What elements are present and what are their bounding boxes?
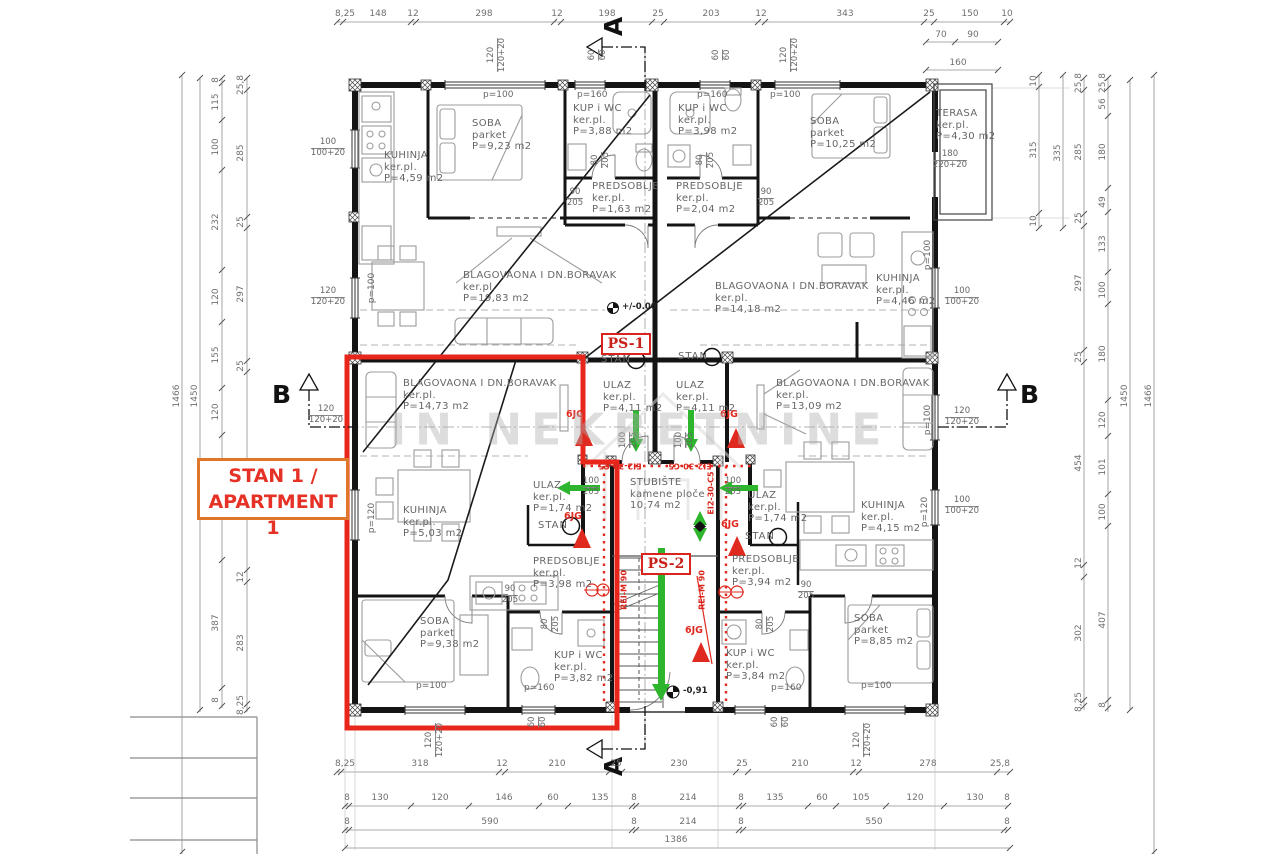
dim-label: 25 (1074, 351, 1084, 362)
dim-label: 180 (1098, 345, 1108, 362)
dim-label: 278 (919, 759, 936, 769)
level-zero-label: +/-0.00 (622, 302, 657, 312)
room-label-br-living: BLAGOVAONA I DN.BORAVAKker.pl.P=13,09 m2 (776, 378, 930, 413)
hydrant-6jg-2: 6JG (720, 409, 738, 420)
dim-label: 100 (1098, 503, 1108, 520)
dim-label: 8 (1004, 793, 1010, 803)
fire-rating-ei-h2: EI2-30-C5 (668, 462, 711, 471)
window-size-label: 6060 (771, 717, 791, 728)
dim-label: 25,8 (990, 759, 1010, 769)
fire-rating-rei-left: REI-M 90 (620, 570, 629, 610)
room-label-bl-living: BLAGOVAONA I DN.BORAVAKker.pl.P=14,73 m2 (403, 378, 557, 413)
dim-label: 8 (631, 817, 637, 827)
dim-label: 387 (211, 614, 221, 631)
apartment1-callout-line2: APARTMENT 1 (200, 489, 346, 541)
dim-label: 1450 (1120, 385, 1130, 408)
room-label-br-ulaz: ULAZker.pl.P=1,74 m2 (748, 490, 808, 525)
hydrant-6jg-1: 6JG (566, 409, 584, 420)
window-size-label: 120120+20 (309, 405, 343, 425)
dim-label: 70 (935, 30, 946, 40)
dim-label: 12 (850, 759, 861, 769)
dim-label: 8,25 (335, 9, 355, 19)
dim-label: 454 (1074, 454, 1084, 471)
dim-label: 203 (702, 9, 719, 19)
parapet-label: p=120 (920, 497, 930, 527)
dim-label: 318 (411, 759, 428, 769)
floor-plan-drawing (0, 0, 1280, 854)
door-size-label: 90205 (567, 188, 583, 208)
fire-rating-rei-right: REI-M 90 (698, 570, 707, 610)
section-a-top: A (599, 17, 628, 36)
window-size-label: 6060 (528, 717, 548, 728)
fire-rating-ei-vert: EI2-30-C5 (707, 471, 716, 514)
dim-label: 120 (1098, 411, 1108, 428)
door-size-label: 90205 (502, 585, 518, 605)
dim-label: 12 (236, 571, 246, 582)
window-size-label: 100100+20 (945, 287, 979, 307)
fire-rating-ei-h1: EI2-30-C5 (598, 462, 641, 471)
dim-label: 8 (738, 817, 744, 827)
dim-label: 8 (344, 817, 350, 827)
dim-label: 8 (738, 793, 744, 803)
parapet-label: p=100 (861, 681, 891, 691)
dim-label: 160 (949, 58, 966, 68)
parapet-label: p=160 (577, 90, 607, 100)
hydrant-6jg-4: 6JG (721, 519, 739, 530)
door-size-label: 80205 (541, 616, 561, 632)
room-label-bl-soba: SOBAparketP=9,38 m2 (420, 616, 480, 651)
dim-label: 25 (236, 360, 246, 371)
dim-label: 8,25 (236, 695, 246, 715)
dim-label: 1466 (172, 385, 182, 408)
window-size-label: 120120+20 (425, 723, 445, 757)
dim-label: 343 (836, 9, 853, 19)
parapet-label: p=100 (923, 240, 933, 270)
room-label-bl-hall: PREDSOBLJEker.pl.P=3,98 m2 (533, 556, 600, 591)
dim-label: 120 (211, 288, 221, 305)
dim-label: 1450 (190, 385, 200, 408)
parapet-label: p=100 (367, 273, 377, 303)
window-size-label: 120120+20 (311, 287, 345, 307)
dim-label: 214 (679, 817, 696, 827)
dim-label: 90 (967, 30, 978, 40)
dim-label: 133 (1098, 235, 1108, 252)
window-size-label: 120120+20 (780, 38, 800, 72)
dim-label: 148 (369, 9, 386, 19)
room-label-tl-hall: PREDSOBLJEker.pl.P=1,63 m2 (592, 181, 659, 216)
dim-label: 12 (496, 759, 507, 769)
door-size-label: 90205 (798, 581, 814, 601)
dim-label: 283 (236, 634, 246, 651)
room-label-tr-soba: SOBAparketP=10,25 m2 (810, 116, 876, 151)
apartment1-callout: STAN 1 / APARTMENT 1 (197, 458, 349, 520)
dim-label: 115 (211, 93, 221, 110)
dim-label: 25,8 (236, 75, 246, 95)
window-size-label: 100100+20 (311, 138, 345, 158)
dim-label: 230 (670, 759, 687, 769)
room-label-tl-soba: SOBAparketP=9,23 m2 (472, 118, 532, 153)
dim-label: 56 (1098, 98, 1108, 109)
dim-label: 210 (791, 759, 808, 769)
hydrant-6jg-3: 6JG (564, 511, 582, 522)
dim-label: 130 (371, 793, 388, 803)
dim-label: 25 (236, 216, 246, 227)
parapet-label: p=100 (923, 405, 933, 435)
dim-label: 12 (407, 9, 418, 19)
terrace-door-size-label: 180220+20 (933, 150, 967, 170)
dim-label: 550 (865, 817, 882, 827)
room-label-br-bath: KUP i WCker.pl.P=3,84 m2 (726, 648, 786, 683)
stan-text-br: STAN (745, 531, 775, 542)
window-size-label: 6060 (588, 50, 608, 61)
hydrant-6jg-5: 6JG (685, 625, 703, 636)
dim-label: 155 (211, 346, 221, 363)
room-label-ulaz-nl: ULAZker.pl.P=4,11 m2 (603, 380, 663, 415)
door-size-label: 90205 (758, 188, 774, 208)
dim-label: 25 (923, 9, 934, 19)
dim-label: 120 (211, 403, 221, 420)
door-size-label: 100205 (675, 432, 695, 448)
dim-label: 8 (1004, 817, 1010, 827)
dim-label: 1386 (665, 835, 688, 845)
dim-label: 8 (631, 793, 637, 803)
level-minus091-label: -0,91 (683, 686, 708, 696)
door-size-label: 100205 (619, 432, 639, 448)
dim-label: 60 (816, 793, 827, 803)
room-label-tl-living: BLAGOVAONA I DN.BORAVAKker.pl.P=19,83 m2 (463, 270, 617, 305)
dim-label: 25 (610, 759, 621, 769)
dim-label: 10 (1029, 75, 1039, 86)
dim-label: 590 (481, 817, 498, 827)
shaft-ps2-box: PS-2 (641, 553, 691, 575)
dim-label: 297 (236, 285, 246, 302)
dim-label: 8 (211, 697, 221, 703)
dim-label: 105 (852, 793, 869, 803)
dim-label: 101 (1098, 458, 1108, 475)
dim-label: 25,8 (1098, 73, 1108, 93)
apartment1-callout-line1: STAN 1 / (200, 463, 346, 489)
dim-label: 315 (1029, 141, 1039, 158)
dim-label: 100 (1098, 281, 1108, 298)
dim-label: 335 (1053, 144, 1063, 161)
dim-label: 297 (1074, 274, 1084, 291)
dim-label: 120 (431, 793, 448, 803)
dim-label: 25 (652, 9, 663, 19)
room-label-tl-bath: KUP i WCker.pl.P=3,88 m2 (573, 103, 633, 138)
adjacent-structure (130, 717, 257, 854)
dim-label: 12 (755, 9, 766, 19)
room-label-stairs: STUBIŠTEkamene ploče10,74 m2 (630, 477, 705, 512)
parapet-label: p=160 (697, 90, 727, 100)
parapet-label: p=100 (483, 90, 513, 100)
door-size-label: 100205 (725, 477, 741, 497)
dim-label: 25 (736, 759, 747, 769)
dim-label: 49 (1098, 196, 1108, 207)
dim-label: 210 (548, 759, 565, 769)
dim-label: 130 (966, 793, 983, 803)
shaft-ps1-box: PS-1 (601, 333, 651, 355)
door-size-label: 100205 (583, 477, 599, 497)
section-b-left: B (272, 380, 291, 409)
dim-label: 232 (211, 213, 221, 230)
room-label-br-soba: SOBAparketP=8,85 m2 (854, 613, 914, 648)
stan-text-nr: STAN (678, 351, 708, 362)
dim-label: 150 (961, 9, 978, 19)
parapet-label: p=160 (771, 683, 801, 693)
dim-label: 302 (1074, 624, 1084, 641)
dim-label: 8 (211, 77, 221, 83)
room-label-tr-kitchen: KUHINJAker.pl.P=4,46 m2 (876, 273, 936, 308)
dim-label: 285 (236, 144, 246, 161)
dim-label: 285 (1074, 143, 1084, 160)
room-label-tl-kitchen: KUHINJAker.pl.P=4,59 m2 (384, 150, 444, 185)
room-label-bl-bath: KUP i WCker.pl.P=3,82 m2 (554, 650, 614, 685)
parapet-label: p=100 (416, 681, 446, 691)
dim-label: 198 (598, 9, 615, 19)
dim-label: 298 (475, 9, 492, 19)
door-size-label: 80205 (591, 152, 611, 168)
floor-plan-page: IN NEKRETNINE KUHINJAker.pl.P=4,59 m2 SO… (0, 0, 1280, 854)
window-size-label: 120120+20 (945, 407, 979, 427)
window-size-label: 6060 (712, 50, 732, 61)
door-size-label: 80205 (696, 152, 716, 168)
room-label-tr-living: BLAGOVAONA I DN.BORAVAKker.pl.P=14,18 m2 (715, 281, 869, 316)
dim-label: 12 (551, 9, 562, 19)
dim-label: 10 (1029, 215, 1039, 226)
dim-label: 180 (1098, 143, 1108, 160)
dim-label: 12 (1074, 557, 1084, 568)
parapet-label: p=160 (524, 683, 554, 693)
dim-label: 146 (495, 793, 512, 803)
dim-label: 25,8 (1074, 73, 1084, 93)
room-label-br-kitchen: KUHINJAker.pl.P=4,15 m2 (861, 500, 921, 535)
room-label-bl-kitchen: KUHINJAker.pl.P=5,03 m2 (403, 505, 463, 540)
window-size-label: 100100+20 (945, 496, 979, 516)
dim-label: 8,25 (335, 759, 355, 769)
dim-label: 100 (211, 138, 221, 155)
stan-text-nl: STAN (601, 354, 631, 365)
window-size-label: 120120+20 (853, 723, 873, 757)
door-size-label: 80205 (756, 616, 776, 632)
parapet-label: p=100 (770, 90, 800, 100)
dim-label: 214 (679, 793, 696, 803)
dim-label: 25 (1074, 212, 1084, 223)
dim-label: 8,25 (1074, 692, 1084, 712)
room-label-terrace: TERASAker.pl.P=4,30 m2 (936, 108, 996, 143)
dim-label: 60 (547, 793, 558, 803)
room-label-br-hall: PREDSOBLJEker.pl.P=3,94 m2 (732, 554, 799, 589)
dim-label: 10 (1001, 9, 1012, 19)
parapet-label: p=120 (367, 503, 377, 533)
dim-label: 407 (1098, 611, 1108, 628)
room-label-tr-bath: KUP i WCker.pl.P=3,98 m2 (678, 103, 738, 138)
dim-label: 135 (591, 793, 608, 803)
dim-label: 120 (906, 793, 923, 803)
dim-label: 8 (344, 793, 350, 803)
window-size-label: 120120+20 (487, 38, 507, 72)
room-label-tr-hall: PREDSOBLJEker.pl.P=2,04 m2 (676, 181, 743, 216)
section-b-right: B (1020, 380, 1039, 409)
dim-label: 8 (1098, 702, 1108, 708)
dim-label: 1466 (1144, 385, 1154, 408)
dim-label: 135 (766, 793, 783, 803)
